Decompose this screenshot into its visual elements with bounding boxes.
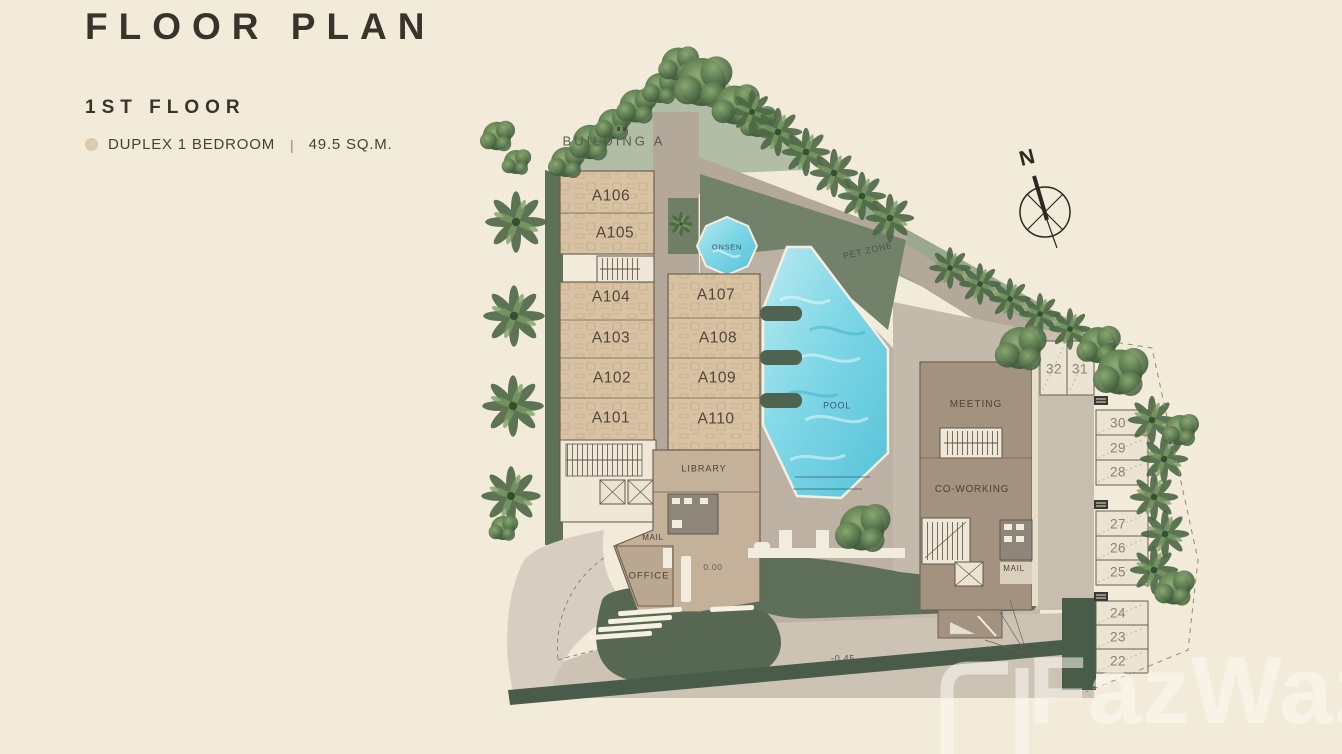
lobby-level-label: 0.00: [703, 563, 722, 572]
parking-31: 31: [1072, 362, 1088, 376]
floor-plan-page: { "header": { "title": "FLOOR PLAN", "fl…: [0, 0, 1342, 754]
building-a-label: BUILDING A: [563, 135, 666, 148]
legend-area: 49.5 SQ.M.: [309, 136, 393, 153]
parking-32: 32: [1046, 362, 1062, 376]
unit-label-a108: A108: [699, 330, 737, 346]
library-label: LIBRARY: [681, 465, 726, 474]
legend-separator: |: [285, 137, 299, 153]
parking-25: 25: [1110, 565, 1126, 579]
pool-label: POOL: [823, 402, 851, 411]
unit-label-a106: A106: [592, 188, 630, 204]
parking-24: 24: [1110, 606, 1126, 620]
mail-club-label: MAIL: [1003, 565, 1024, 573]
parking-29: 29: [1110, 441, 1126, 455]
unit-label-a103: A103: [592, 330, 630, 346]
legend-unit-type: DUPLEX 1 BEDROOM: [108, 136, 275, 153]
parking-26: 26: [1110, 541, 1126, 555]
road-level-west: -0.45: [831, 655, 855, 664]
unit-label-a105: A105: [596, 225, 634, 241]
legend: DUPLEX 1 BEDROOM | 49.5 SQ.M.: [85, 136, 393, 153]
north-compass: [1020, 176, 1070, 248]
unit-label-a107: A107: [697, 287, 735, 303]
unit-label-a104: A104: [592, 289, 630, 305]
stairwell-north: [597, 256, 654, 282]
floor-subtitle: 1ST FLOOR: [85, 97, 246, 119]
meeting-label: MEETING: [950, 400, 1003, 410]
fazwaz-text-watermark: FazWaz: [1028, 636, 1342, 746]
legend-swatch: [85, 138, 98, 151]
page-title: FLOOR PLAN: [85, 6, 435, 48]
office-label: OFFICE: [629, 571, 670, 581]
unit-label-a102: A102: [593, 370, 631, 386]
unit-label-a101: A101: [592, 410, 630, 426]
parking-28: 28: [1110, 465, 1126, 479]
coworking-label: CO-WORKING: [935, 485, 1009, 495]
unit-label-a110: A110: [697, 411, 734, 427]
onsen-label: ONSEN: [712, 243, 742, 251]
unit-label-a109: A109: [698, 370, 736, 386]
mail-lobby-label: MAIL: [642, 534, 663, 542]
parking-30: 30: [1110, 416, 1126, 430]
parking-27: 27: [1110, 517, 1126, 531]
